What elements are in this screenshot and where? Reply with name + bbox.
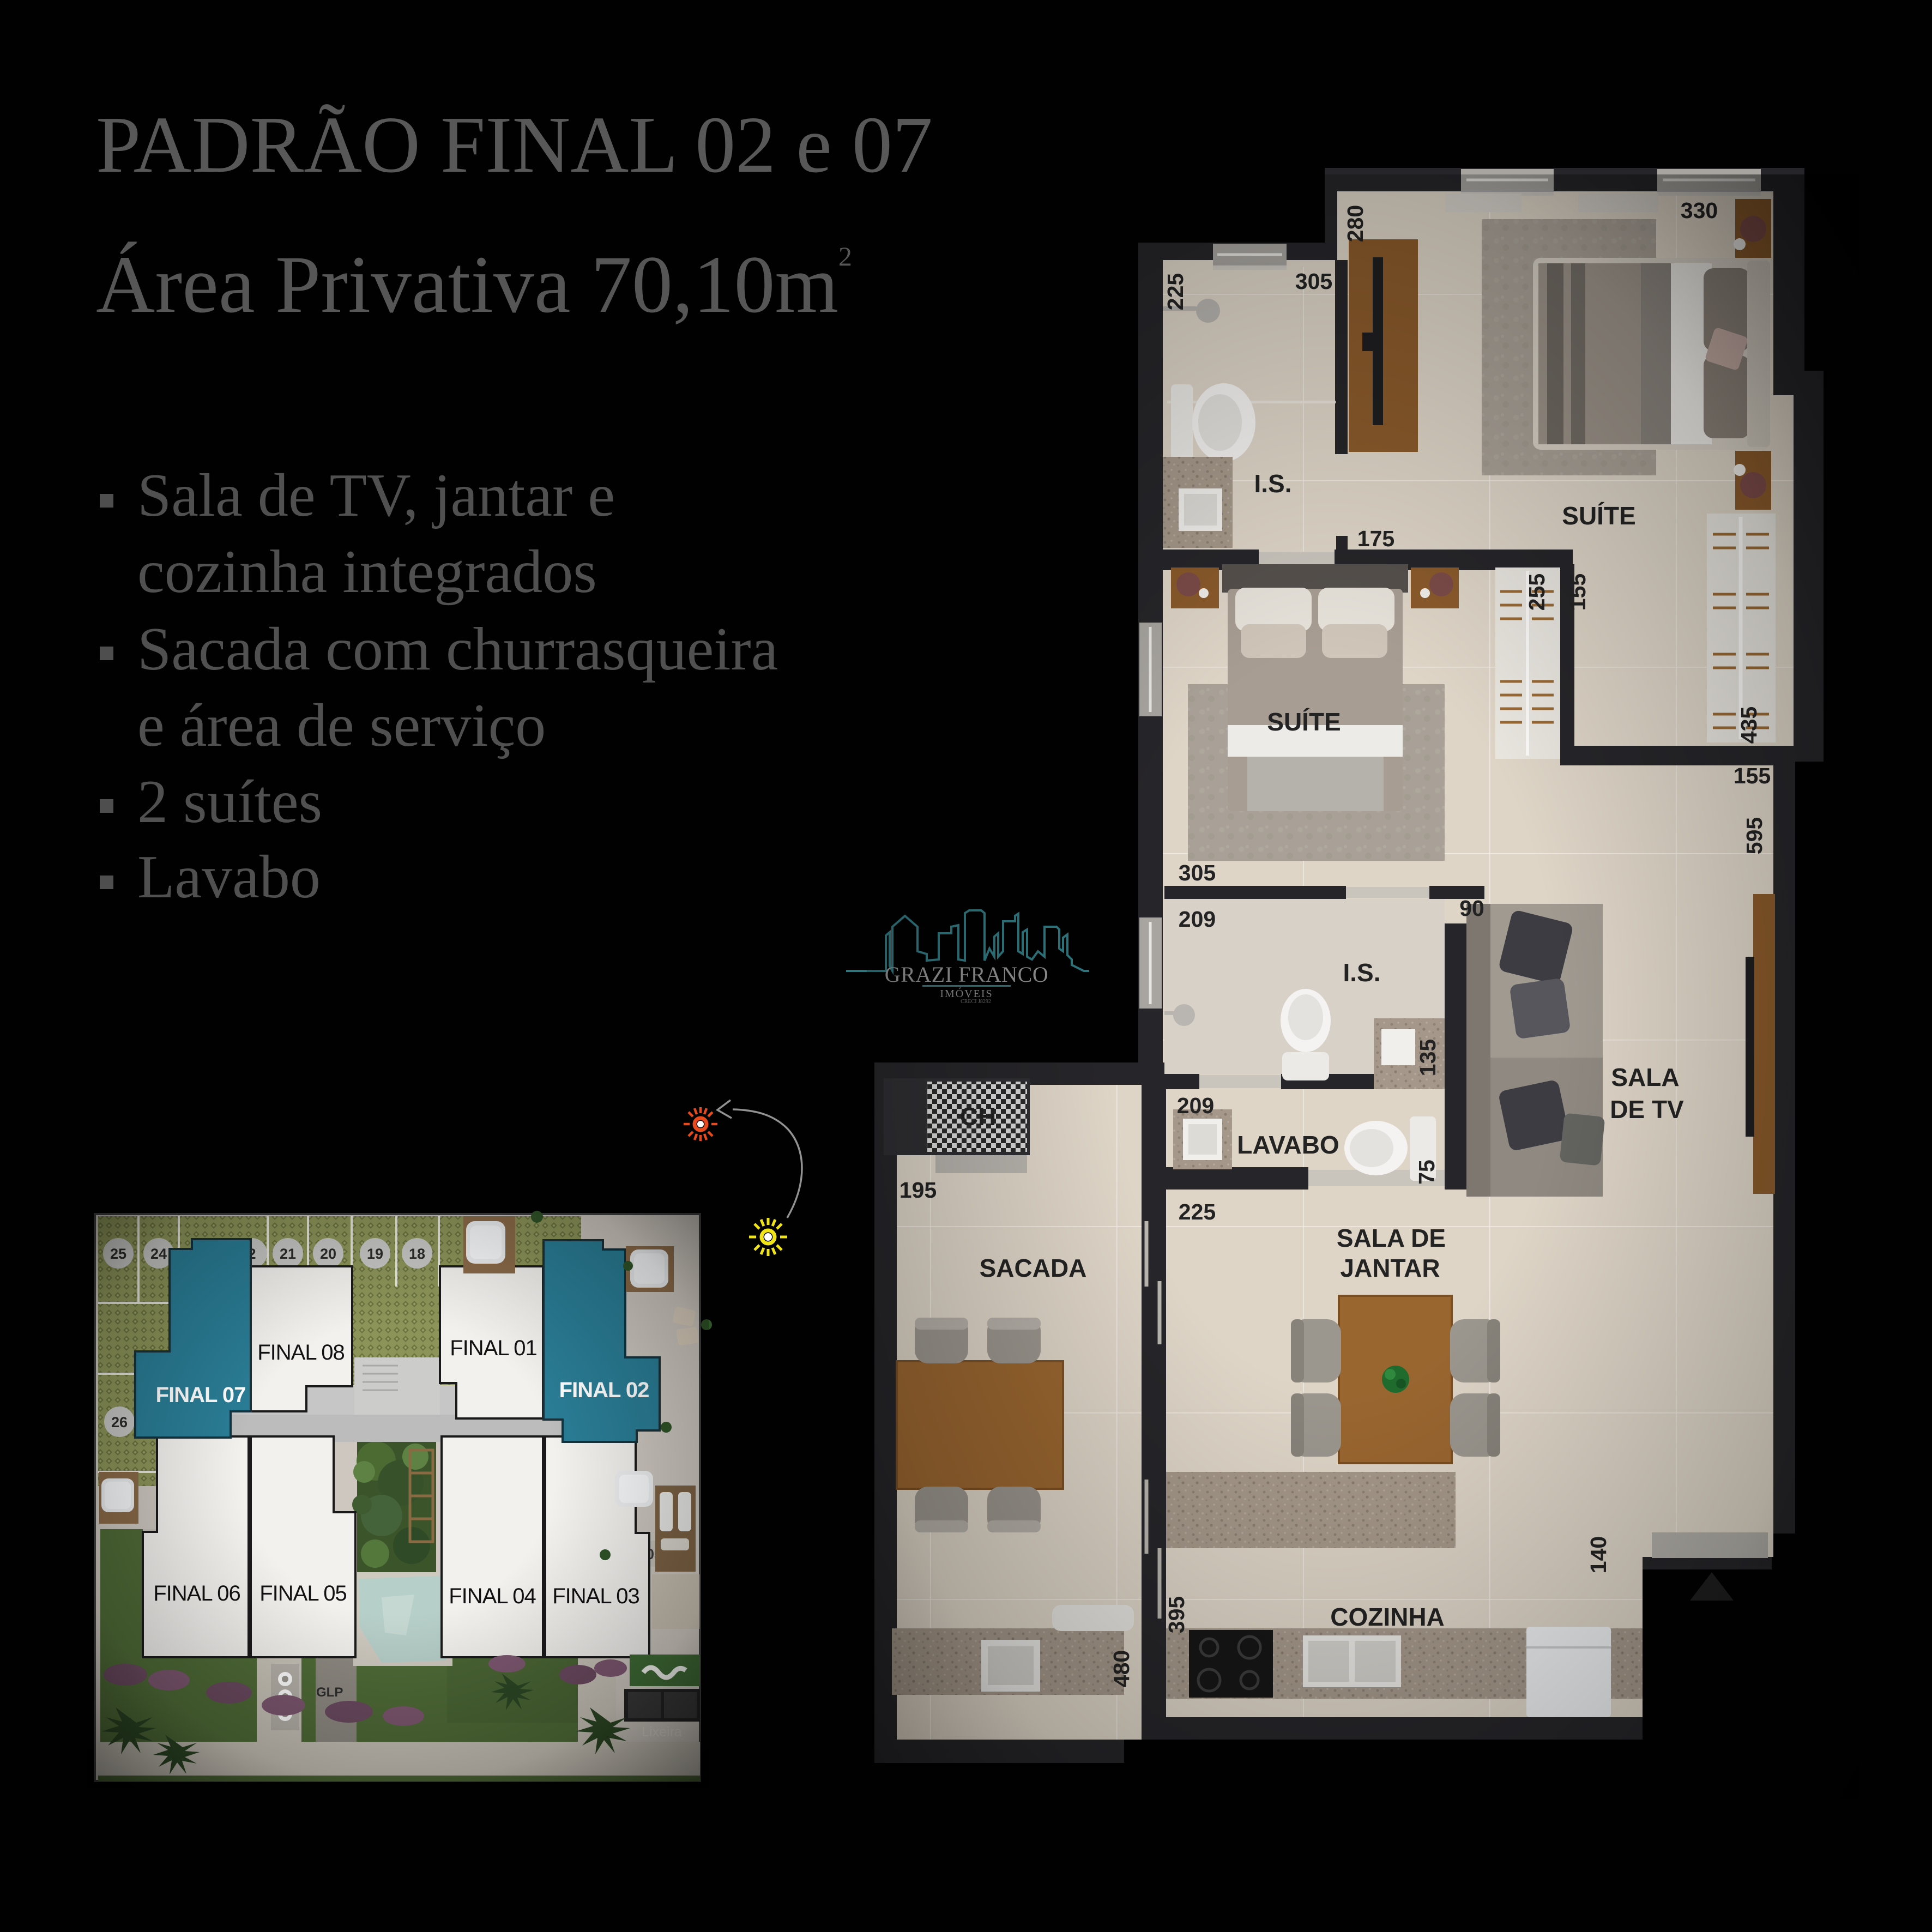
svg-text:Área Privativa 70,10m: Área Privativa 70,10m bbox=[96, 239, 838, 330]
svg-text:e área de serviço: e área de serviço bbox=[137, 692, 546, 759]
svg-text:Sacada com churrasqueira: Sacada com churrasqueira bbox=[137, 615, 778, 683]
svg-text:Lavabo: Lavabo bbox=[137, 843, 321, 911]
svg-text:2 suítes: 2 suítes bbox=[137, 768, 322, 836]
svg-text:PADRÃO FINAL 02 e 07: PADRÃO FINAL 02 e 07 bbox=[96, 100, 933, 190]
svg-text:cozinha integrados: cozinha integrados bbox=[137, 538, 597, 606]
svg-text:2: 2 bbox=[838, 241, 852, 271]
svg-text:Sala de TV, jantar e: Sala de TV, jantar e bbox=[137, 462, 615, 529]
